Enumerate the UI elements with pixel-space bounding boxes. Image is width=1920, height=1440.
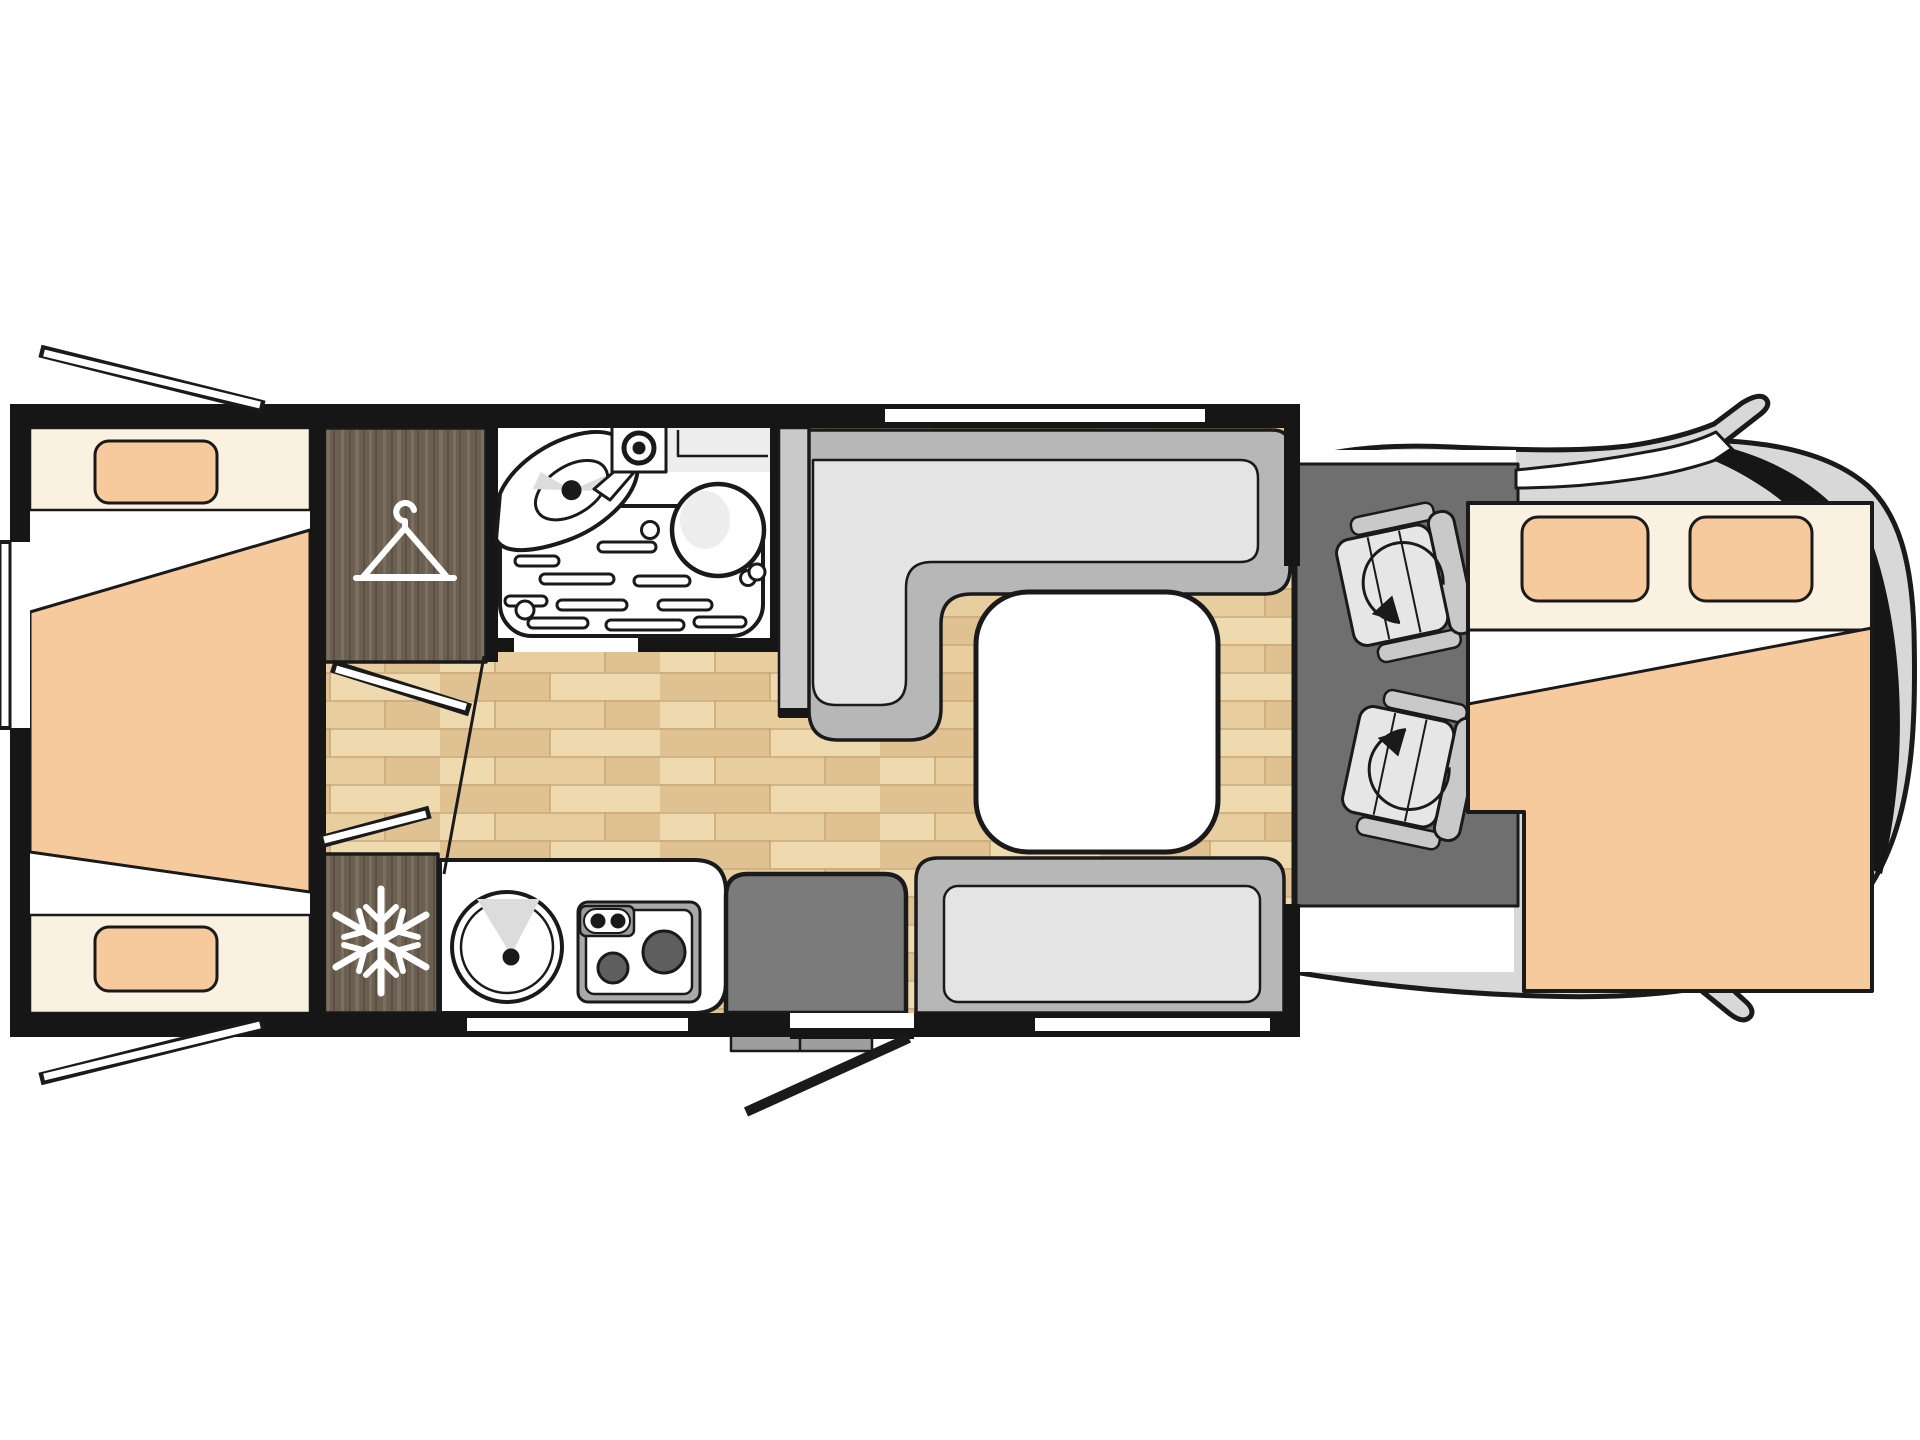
hob-knob [591, 914, 606, 929]
pillow-top [95, 441, 217, 503]
cab-interior-bottom [1296, 906, 1514, 972]
two-burner-hob [578, 902, 700, 1002]
dinette-table [976, 592, 1218, 852]
pillow-bottom [95, 927, 217, 991]
bathroom-bottom-wall-right [638, 638, 784, 652]
kitchen-sink [452, 892, 562, 1002]
bottom-wall-window-bench [1035, 1018, 1270, 1031]
bottom-wall-window-kitchen [467, 1018, 688, 1031]
bathroom-shelf-shade [664, 428, 770, 472]
cab-wall-stub-bottom [1284, 904, 1300, 1037]
entry-threshold [790, 1028, 914, 1039]
hob-burner-small [598, 953, 628, 983]
toilet [672, 484, 765, 580]
hob-burner-large [643, 931, 685, 973]
bed-pillow-left [1522, 517, 1648, 601]
wardrobe-cabinet [324, 428, 486, 662]
side-bench-cushion [944, 886, 1260, 1002]
drop-down-bed [1468, 503, 1872, 991]
hob-knob [611, 914, 626, 929]
bathroom-bottom-wall-left [498, 638, 514, 652]
bed-pillow-right [1690, 517, 1812, 601]
wardrobe [324, 428, 486, 662]
cab-wall-stub-top [1284, 404, 1300, 566]
left-wall-window [10, 542, 30, 728]
bathroom [468, 404, 784, 652]
entry-step [726, 874, 906, 1013]
kitchen [324, 854, 726, 1013]
wardrobe-bathroom-partition [486, 428, 498, 662]
floor-plan-canvas [0, 0, 1920, 1440]
bench-end-panel [779, 428, 809, 716]
bench-end-panel-cap [779, 708, 809, 718]
top-wall-window [885, 409, 1205, 422]
rear-bedroom [30, 428, 310, 1013]
floor-plan-svg [0, 0, 1920, 1440]
bedroom-divider-wall [310, 404, 326, 1037]
